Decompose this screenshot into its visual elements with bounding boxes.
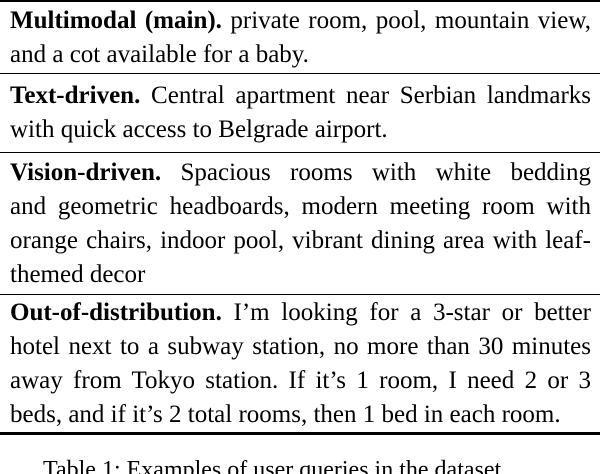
query-examples-table: Multimodal (main). private room, pool, m… bbox=[0, 0, 600, 435]
row-line: Text-driven. Central apartment near Serb… bbox=[10, 79, 591, 113]
row-label-out-of-distribution: Out-of-distribution. bbox=[10, 299, 222, 326]
row-text: I’m looking for a 3-star or better bbox=[222, 299, 591, 326]
row-label-vision-driven: Vision-driven. bbox=[10, 159, 161, 186]
table-row-vision-driven: Vision-driven. Spacious rooms with white… bbox=[0, 152, 600, 295]
row-line: Out-of-distribution. I’m looking for a 3… bbox=[10, 296, 591, 330]
table-row-out-of-distribution: Out-of-distribution. I’m looking for a 3… bbox=[0, 294, 600, 432]
row-text: Spacious rooms with white bedding bbox=[161, 159, 591, 186]
row-label-text-driven: Text-driven. bbox=[10, 82, 140, 109]
row-line: with quick access to Belgrade airport. bbox=[10, 113, 591, 147]
table-row-multimodal: Multimodal (main). private room, pool, m… bbox=[0, 2, 600, 73]
row-label-multimodal: Multimodal (main). bbox=[10, 7, 222, 34]
table-caption: Table 1: Examples of user queries in the… bbox=[43, 455, 600, 474]
row-text: Central apartment near Serbian landmarks bbox=[140, 82, 591, 109]
row-line: beds, and if it’s 2 total rooms, then 1 … bbox=[10, 398, 591, 432]
row-line: Vision-driven. Spacious rooms with white… bbox=[10, 156, 591, 190]
row-line: hotel next to a subway station, no more … bbox=[10, 330, 591, 364]
row-line: away from Tokyo station. If it’s 1 room,… bbox=[10, 364, 591, 398]
row-line: Multimodal (main). private room, pool, m… bbox=[10, 4, 591, 38]
row-text: private room, pool, mountain view, bbox=[222, 7, 591, 34]
row-line: themed decor bbox=[10, 258, 591, 292]
row-line: and a cot available for a baby. bbox=[10, 38, 591, 72]
table-row-text-driven: Text-driven. Central apartment near Serb… bbox=[0, 73, 600, 152]
row-line: orange chairs, indoor pool, vibrant dini… bbox=[10, 224, 591, 258]
row-line: and geometric headboards, modern meeting… bbox=[10, 190, 591, 224]
